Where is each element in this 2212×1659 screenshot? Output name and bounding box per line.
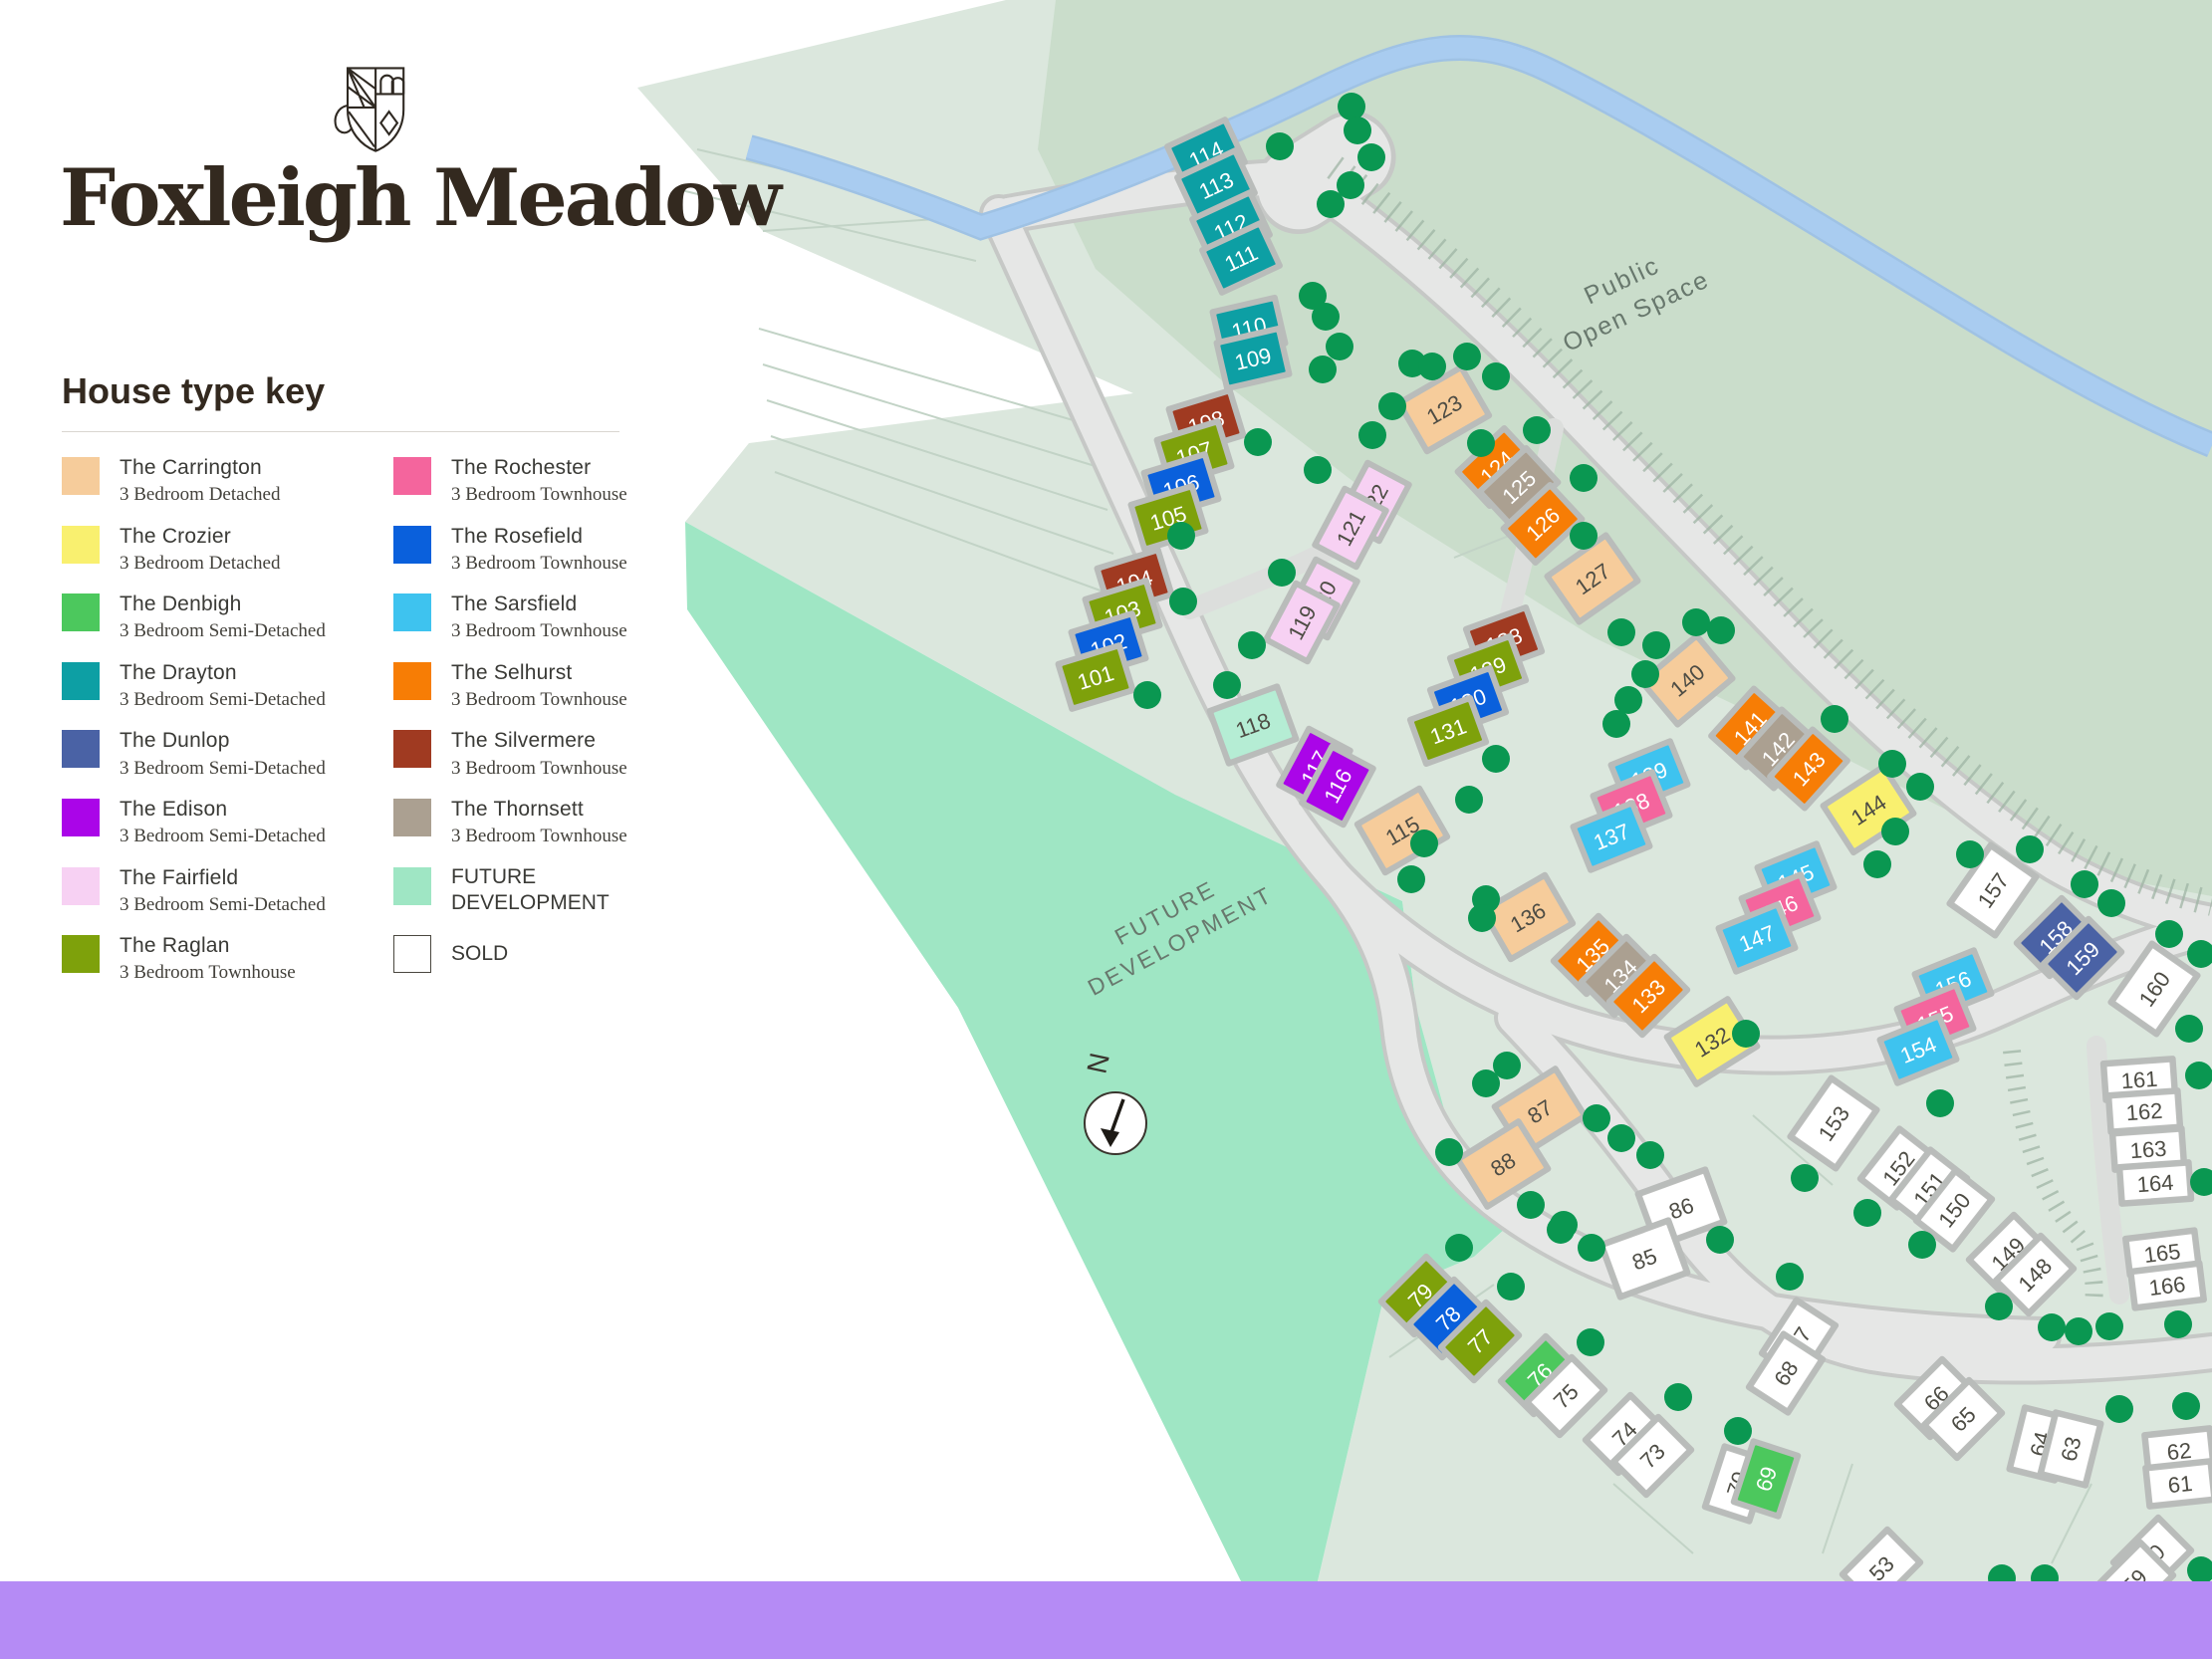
tree-icon: [1418, 353, 1446, 380]
tree-icon: [1853, 1199, 1881, 1227]
tree-icon: [1467, 429, 1495, 457]
tree-icon: [1453, 343, 1481, 370]
tree-icon: [1636, 1141, 1664, 1169]
tree-icon: [1213, 671, 1241, 699]
tree-icon: [1583, 1104, 1610, 1132]
tree-icon: [1607, 618, 1635, 646]
tree-icon: [1577, 1328, 1604, 1356]
tree-icon: [1926, 1089, 1954, 1117]
tree-icon: [1707, 616, 1735, 644]
tree-icon: [1523, 416, 1551, 444]
tree-icon: [1468, 904, 1496, 932]
tree-icon: [1378, 392, 1406, 420]
tree-icon: [1244, 428, 1272, 456]
tree-icon: [1956, 840, 1984, 868]
tree-icon: [1357, 143, 1385, 171]
plot-number: 162: [2125, 1098, 2163, 1126]
tree-icon: [1878, 750, 1906, 778]
tree-icon: [2164, 1310, 2192, 1338]
plot-number: 163: [2129, 1136, 2167, 1164]
tree-icon: [1607, 1124, 1635, 1152]
tree-icon: [1706, 1226, 1734, 1254]
tree-icon: [1724, 1417, 1752, 1445]
tree-icon: [1309, 355, 1337, 383]
plot-61[interactable]: 61: [2142, 1458, 2212, 1510]
tree-icon: [1570, 464, 1598, 492]
tree-icon: [1317, 190, 1345, 218]
plot-number: 61: [2167, 1471, 2194, 1498]
tree-icon: [1344, 117, 1371, 144]
tree-icon: [2155, 920, 2183, 948]
tree-icon: [2071, 870, 2098, 898]
tree-icon: [2095, 1312, 2123, 1340]
tree-icon: [1602, 710, 1630, 738]
tree-icon: [1167, 522, 1195, 550]
tree-icon: [1445, 1234, 1473, 1262]
tree-icon: [1985, 1293, 2013, 1320]
tree-icon: [1547, 1216, 1575, 1244]
tree-icon: [1517, 1191, 1545, 1219]
tree-icon: [1664, 1383, 1692, 1411]
tree-icon: [1338, 93, 1365, 120]
tree-icon: [1791, 1164, 1819, 1192]
tree-icon: [1570, 522, 1598, 550]
tree-icon: [1908, 1231, 1936, 1259]
tree-icon: [1268, 559, 1296, 587]
tree-icon: [1312, 303, 1340, 331]
site-map[interactable]: 1141131121111101091081071061051041031021…: [0, 0, 2212, 1659]
tree-icon: [1266, 132, 1294, 160]
tree-icon: [1906, 773, 1934, 801]
plot-number: 166: [2147, 1272, 2186, 1301]
tree-icon: [1133, 681, 1161, 709]
plot-number: 164: [2136, 1170, 2174, 1198]
tree-icon: [1578, 1234, 1605, 1262]
tree-icon: [2016, 835, 2044, 863]
tree-icon: [1881, 818, 1909, 845]
tree-icon: [1304, 456, 1332, 484]
tree-icon: [1482, 362, 1510, 390]
tree-icon: [1682, 608, 1710, 636]
plot-166[interactable]: 166: [2127, 1260, 2208, 1311]
site-plan-page: 1141131121111101091081071061051041031021…: [0, 0, 2212, 1659]
tree-icon: [1482, 745, 1510, 773]
tree-icon: [2097, 889, 2125, 917]
tree-icon: [1169, 588, 1197, 615]
footer-bar: [0, 1581, 2212, 1659]
tree-icon: [1497, 1273, 1525, 1301]
tree-icon: [2175, 1015, 2203, 1043]
tree-icon: [1776, 1263, 1804, 1291]
tree-icon: [2065, 1317, 2092, 1345]
plot-164[interactable]: 164: [2116, 1159, 2195, 1207]
tree-icon: [1821, 705, 1848, 733]
tree-icon: [1642, 631, 1670, 659]
tree-icon: [1410, 829, 1438, 857]
tree-icon: [2185, 1062, 2212, 1089]
tree-icon: [1435, 1138, 1463, 1166]
tree-icon: [2172, 1392, 2200, 1420]
tree-icon: [1358, 421, 1386, 449]
tree-icon: [1863, 850, 1891, 878]
tree-icon: [1326, 333, 1353, 360]
tree-icon: [2105, 1395, 2133, 1423]
tree-icon: [1397, 865, 1425, 893]
tree-icon: [1238, 631, 1266, 659]
tree-icon: [1472, 1069, 1500, 1097]
tree-icon: [1614, 686, 1642, 714]
tree-icon: [1631, 660, 1659, 688]
tree-icon: [1455, 786, 1483, 814]
tree-icon: [2038, 1313, 2066, 1341]
tree-icon: [1732, 1020, 1760, 1048]
